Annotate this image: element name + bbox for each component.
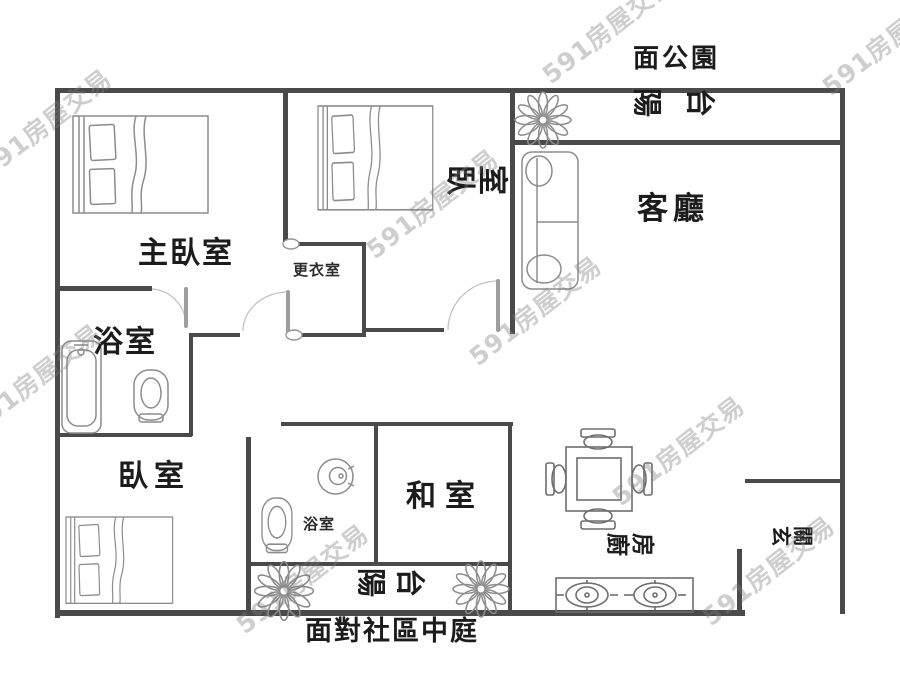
bed-icon-bedroom-bottom xyxy=(66,517,173,603)
door-arc-bathroom xyxy=(152,289,186,326)
sliding-door-knobs xyxy=(283,239,302,340)
bed-icon-bedroom-top xyxy=(318,106,433,210)
label-bathroom-small: 浴室 xyxy=(303,517,335,532)
door-arc-hallway xyxy=(243,292,288,331)
label-entryway: 玄關 xyxy=(770,527,814,547)
label-facing-courtyard: 面對社區中庭 xyxy=(305,618,479,645)
label-balcony-top: 陽台 xyxy=(620,100,726,129)
door-arc-bedroom-top xyxy=(448,281,498,330)
plant-icon-balcony-bottom-right xyxy=(453,561,509,617)
sofa-icon xyxy=(522,152,578,289)
label-living-room: 客廳 xyxy=(637,194,709,225)
label-tatami-room: 和室 xyxy=(406,482,484,512)
label-balcony-bottom: 陽台 xyxy=(351,573,429,602)
label-master-bedroom: 主臥室 xyxy=(138,239,234,269)
floor-plan: 面公園 陽台 客廳 主臥室 臥室 更衣室 浴室 臥室 和室 浴室 陽台 廚房 玄… xyxy=(0,0,900,683)
label-bedroom-bottom: 臥室 xyxy=(118,462,190,492)
label-kitchen: 廚房 xyxy=(604,534,654,557)
plant-icon-balcony-bottom-left xyxy=(255,562,314,621)
toilet-icon-main-bath xyxy=(134,370,168,422)
label-bathroom-main: 浴室 xyxy=(93,328,157,358)
label-dressing-room: 更衣室 xyxy=(293,263,341,278)
label-facing-park: 面公園 xyxy=(633,46,720,72)
plant-icon-balcony-top xyxy=(515,92,571,148)
dining-table-icon xyxy=(546,429,652,529)
stove-icon xyxy=(556,578,693,612)
washbasin-icon xyxy=(318,459,354,494)
bed-icon-master xyxy=(73,116,208,213)
toilet-icon-small-bath xyxy=(262,498,292,553)
label-bedroom-top: 臥室 xyxy=(443,166,507,196)
